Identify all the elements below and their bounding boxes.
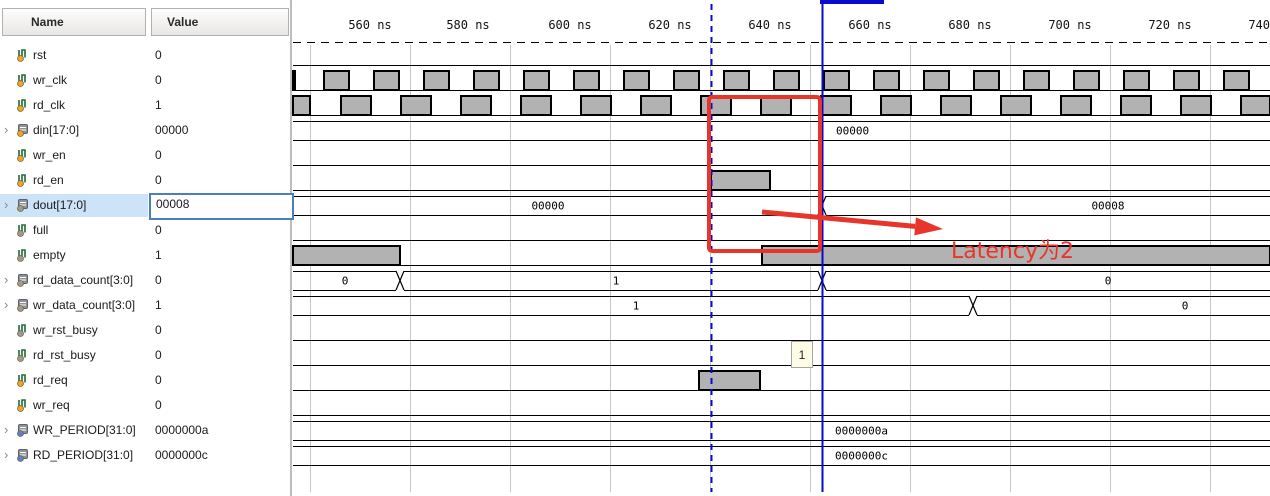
signal-row-full[interactable]: full0 — [0, 218, 290, 243]
scalar-signal-icon — [16, 73, 30, 88]
signal-row-din[interactable]: ›din[17:0]00000 — [0, 118, 290, 143]
signal-row-wr_en[interactable]: wr_en0 — [0, 143, 290, 168]
bus-signal-icon — [16, 123, 30, 138]
signal-row-rd_en[interactable]: rd_en0 — [0, 168, 290, 193]
bus-value-label: 1 — [633, 300, 640, 313]
signal-value-label: 1 — [155, 98, 162, 112]
signal-name-label: wr_rst_busy — [33, 323, 98, 337]
value-tooltip: 1 — [791, 341, 813, 368]
time-axis-label: 700 ns — [1048, 18, 1091, 32]
expand-chevron-icon[interactable]: › — [4, 274, 12, 286]
signal-name-label: full — [33, 223, 48, 237]
expand-chevron-icon[interactable]: › — [4, 449, 12, 461]
signal-value-label: 0 — [155, 398, 162, 412]
signal-name-label: wr_clk — [33, 73, 67, 87]
signal-name-label: RD_PERIOD[31:0] — [33, 448, 133, 462]
annotation-arrow — [762, 212, 915, 226]
wave-row-rd_en — [293, 171, 1270, 191]
signal-row-rst[interactable]: rst0 — [0, 43, 290, 68]
scalar-signal-icon — [16, 323, 30, 338]
signal-row-rd_data_count[interactable]: ›rd_data_count[3:0]0 — [0, 268, 290, 293]
scalar-signal-icon — [16, 348, 30, 363]
wave-row-wr_clk — [293, 71, 1270, 91]
time-axis-label: 600 ns — [548, 18, 591, 32]
expand-chevron-icon[interactable]: › — [4, 299, 12, 311]
bus-value-label: 00000 — [531, 200, 564, 213]
signal-name-label: dout[17:0] — [33, 198, 86, 212]
cursor-top-bar[interactable] — [820, 0, 884, 4]
signal-row-WR_PERIOD[interactable]: ›WR_PERIOD[31:0]0000000a — [0, 418, 290, 443]
bus-value-label: 00000 — [836, 125, 869, 138]
signal-row-empty[interactable]: empty1 — [0, 243, 290, 268]
bus-signal-icon — [16, 448, 30, 463]
scalar-signal-icon — [16, 48, 30, 63]
signal-row-dout[interactable]: ›dout[17:0]00008 — [0, 193, 290, 218]
expand-chevron-icon[interactable]: › — [4, 124, 12, 136]
signal-name-label: din[17:0] — [33, 123, 79, 137]
time-axis-label: 720 ns — [1148, 18, 1191, 32]
signal-name-label: WR_PERIOD[31:0] — [33, 423, 136, 437]
bus-signal-icon — [16, 273, 30, 288]
time-axis-label: 680 ns — [948, 18, 991, 32]
wave-row-empty — [293, 246, 1270, 266]
scalar-signal-icon — [16, 248, 30, 263]
time-axis-label: 660 ns — [848, 18, 891, 32]
signal-value-label: 0 — [155, 48, 162, 62]
signal-row-wr_clk[interactable]: wr_clk0 — [0, 68, 290, 93]
wave-row-din: 00000 — [293, 122, 1270, 141]
bus-value-label: 0 — [342, 275, 349, 288]
scalar-signal-icon — [16, 98, 30, 113]
bus-value-label: 00008 — [1091, 200, 1124, 213]
signal-name-label: wr_req — [33, 398, 70, 412]
bus-signal-icon — [16, 298, 30, 313]
signal-value-label: 0000000a — [155, 423, 208, 437]
signal-name-label: rd_rst_busy — [33, 348, 96, 362]
signal-value-label: 0 — [155, 273, 162, 287]
scalar-signal-icon — [16, 398, 30, 413]
expand-chevron-icon[interactable]: › — [4, 424, 12, 436]
signal-name-label: rd_data_count[3:0] — [33, 273, 133, 287]
wave-row-rd_req — [293, 371, 1270, 391]
signal-list: rst0wr_clk0rd_clk1›din[17:0]00000wr_en0r… — [0, 43, 290, 468]
signal-row-rd_clk[interactable]: rd_clk1 — [0, 93, 290, 118]
bus-value-label: 0000000a — [835, 425, 888, 438]
signal-name-label: wr_en — [33, 148, 66, 162]
waveform-viewer-window: 560 ns580 ns600 ns620 ns640 ns660 ns680 … — [0, 0, 1270, 496]
signal-value-label: 1 — [155, 298, 162, 312]
signal-row-rd_req[interactable]: rd_req0 — [0, 368, 290, 393]
signal-value-label: 1 — [155, 248, 162, 262]
signal-name-label: empty — [33, 248, 66, 262]
value-column-header[interactable]: Value — [151, 8, 289, 36]
time-axis-label: 580 ns — [446, 18, 489, 32]
wave-row-wr_data_count: 10 — [293, 296, 1270, 316]
wave-row-RD_PERIOD: 0000000c — [293, 447, 1270, 466]
signal-name-label: rd_req — [33, 373, 68, 387]
signal-value-label: 0 — [155, 373, 162, 387]
latency-annotation-text: Latency为2 — [951, 233, 1074, 265]
scalar-signal-icon — [16, 373, 30, 388]
signal-row-wr_req[interactable]: wr_req0 — [0, 393, 290, 418]
value-edit-box[interactable]: 00008 — [149, 193, 294, 220]
time-axis-label: 640 ns — [748, 18, 791, 32]
time-axis-label: 620 ns — [648, 18, 691, 32]
time-axis-label: 740 ns — [1248, 18, 1270, 32]
signal-row-RD_PERIOD[interactable]: ›RD_PERIOD[31:0]0000000c — [0, 443, 290, 468]
bus-value-label: 0000000c — [835, 450, 888, 463]
expand-chevron-icon[interactable]: › — [4, 199, 12, 211]
signal-name-label: rst — [33, 48, 46, 62]
bus-value-label: 0 — [1182, 300, 1189, 313]
scalar-signal-icon — [16, 173, 30, 188]
time-axis-label: 560 ns — [348, 18, 391, 32]
signal-row-rd_rst_busy[interactable]: rd_rst_busy0 — [0, 343, 290, 368]
signal-panel: Name Value rst0wr_clk0rd_clk1›din[17:0]0… — [0, 0, 292, 496]
annotation-arrowhead — [914, 217, 943, 235]
signal-value-label: 00000 — [155, 123, 188, 137]
bus-value-label: 1 — [613, 275, 620, 288]
signal-value-label: 0 — [155, 173, 162, 187]
signal-row-wr_rst_busy[interactable]: wr_rst_busy0 — [0, 318, 290, 343]
bus-signal-icon — [16, 423, 30, 438]
signal-row-wr_data_count[interactable]: ›wr_data_count[3:0]1 — [0, 293, 290, 318]
signal-value-label: 0 — [155, 323, 162, 337]
bus-value-label: 0 — [1105, 275, 1112, 288]
name-column-header[interactable]: Name — [2, 8, 146, 36]
wave-row-rd_data_count: 010 — [293, 271, 1270, 291]
signal-name-label: rd_clk — [33, 98, 65, 112]
scalar-signal-icon — [16, 223, 30, 238]
signal-value-label: 0 — [155, 348, 162, 362]
bus-signal-icon — [16, 198, 30, 213]
signal-name-label: wr_data_count[3:0] — [33, 298, 135, 312]
scalar-signal-icon — [16, 148, 30, 163]
signal-value-label: 0 — [155, 223, 162, 237]
wave-row-WR_PERIOD: 0000000a — [293, 422, 1270, 441]
signal-value-label: 0 — [155, 148, 162, 162]
signal-name-label: rd_en — [33, 173, 64, 187]
signal-value-label: 0 — [155, 73, 162, 87]
signal-value-label: 0000000c — [155, 448, 208, 462]
